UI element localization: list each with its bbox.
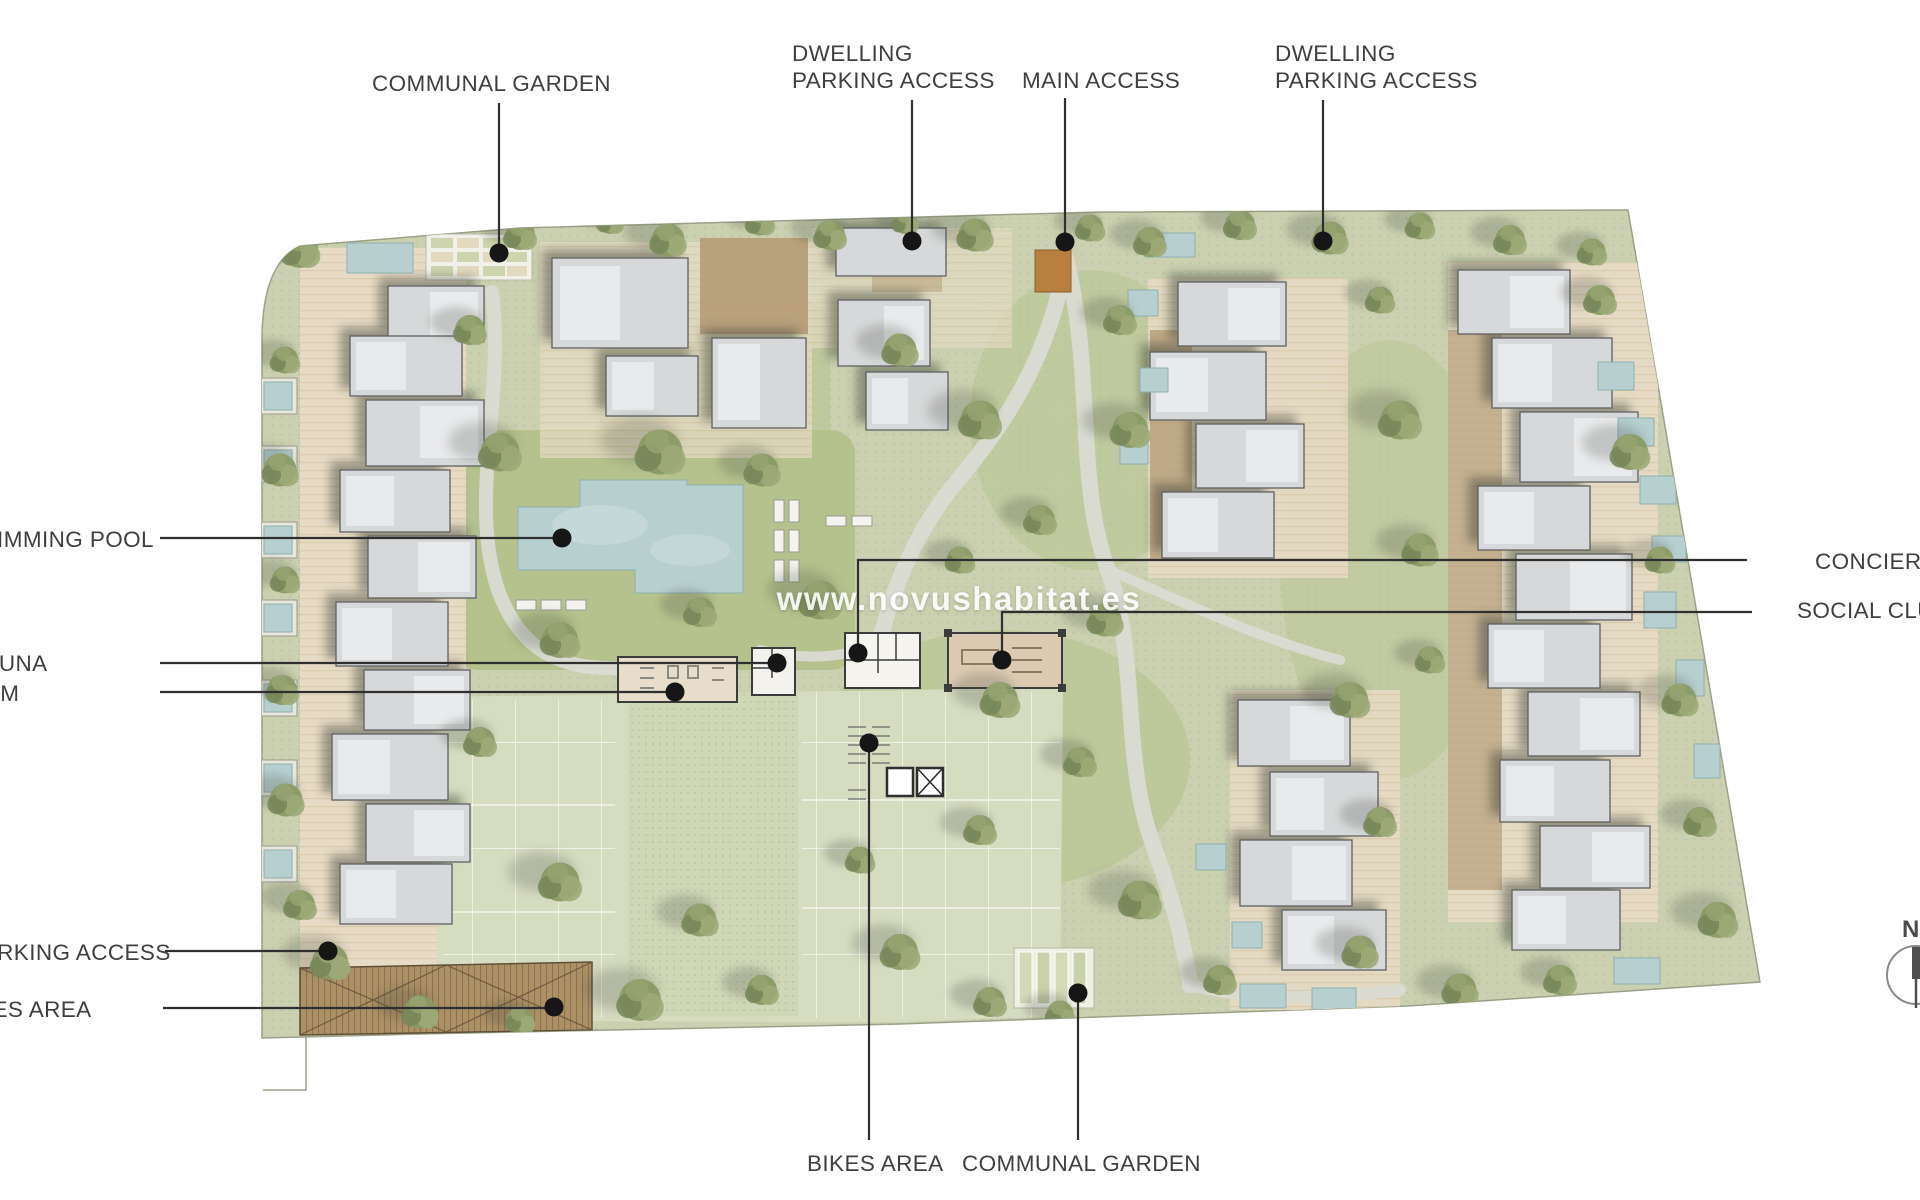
- label-line: PARKING ACCESS: [1275, 67, 1478, 94]
- label-parking-access-left: PARKING ACCESS: [0, 939, 171, 966]
- label-bikes-area-bottom: BIKES AREA: [807, 1150, 944, 1177]
- label-bikes-area-left: BIKES AREA: [0, 996, 92, 1023]
- label-communal-garden-top: COMMUNAL GARDEN: [372, 70, 611, 97]
- north-label: N: [1902, 916, 1919, 944]
- label-gym: GYM: [0, 680, 19, 707]
- label-concierge: CONCIERGE: [1815, 548, 1920, 575]
- label-line: DWELLING: [1275, 40, 1478, 67]
- label-sauna: SAUNA: [0, 650, 48, 677]
- site-plan-page: COMMUNAL GARDEN DWELLING PARKING ACCESS …: [0, 0, 1920, 1200]
- label-line: PARKING ACCESS: [792, 67, 995, 94]
- north-compass: [1887, 946, 1920, 1008]
- main-access-drive: [1035, 250, 1071, 292]
- label-main-access: MAIN ACCESS: [1022, 67, 1180, 94]
- watermark: www.novushabitat.es: [777, 580, 1142, 618]
- top-left-pool: [347, 243, 413, 273]
- label-dwelling-parking-access-left: DWELLING PARKING ACCESS: [792, 40, 995, 94]
- label-dwelling-parking-access-right: DWELLING PARKING ACCESS: [1275, 40, 1478, 94]
- label-communal-garden-bottom: COMMUNAL GARDEN: [962, 1150, 1201, 1177]
- label-line: DWELLING: [792, 40, 995, 67]
- label-social-club: SOCIAL CLUB: [1797, 597, 1920, 624]
- label-swimming-pool: SWIMMING POOL: [0, 526, 154, 553]
